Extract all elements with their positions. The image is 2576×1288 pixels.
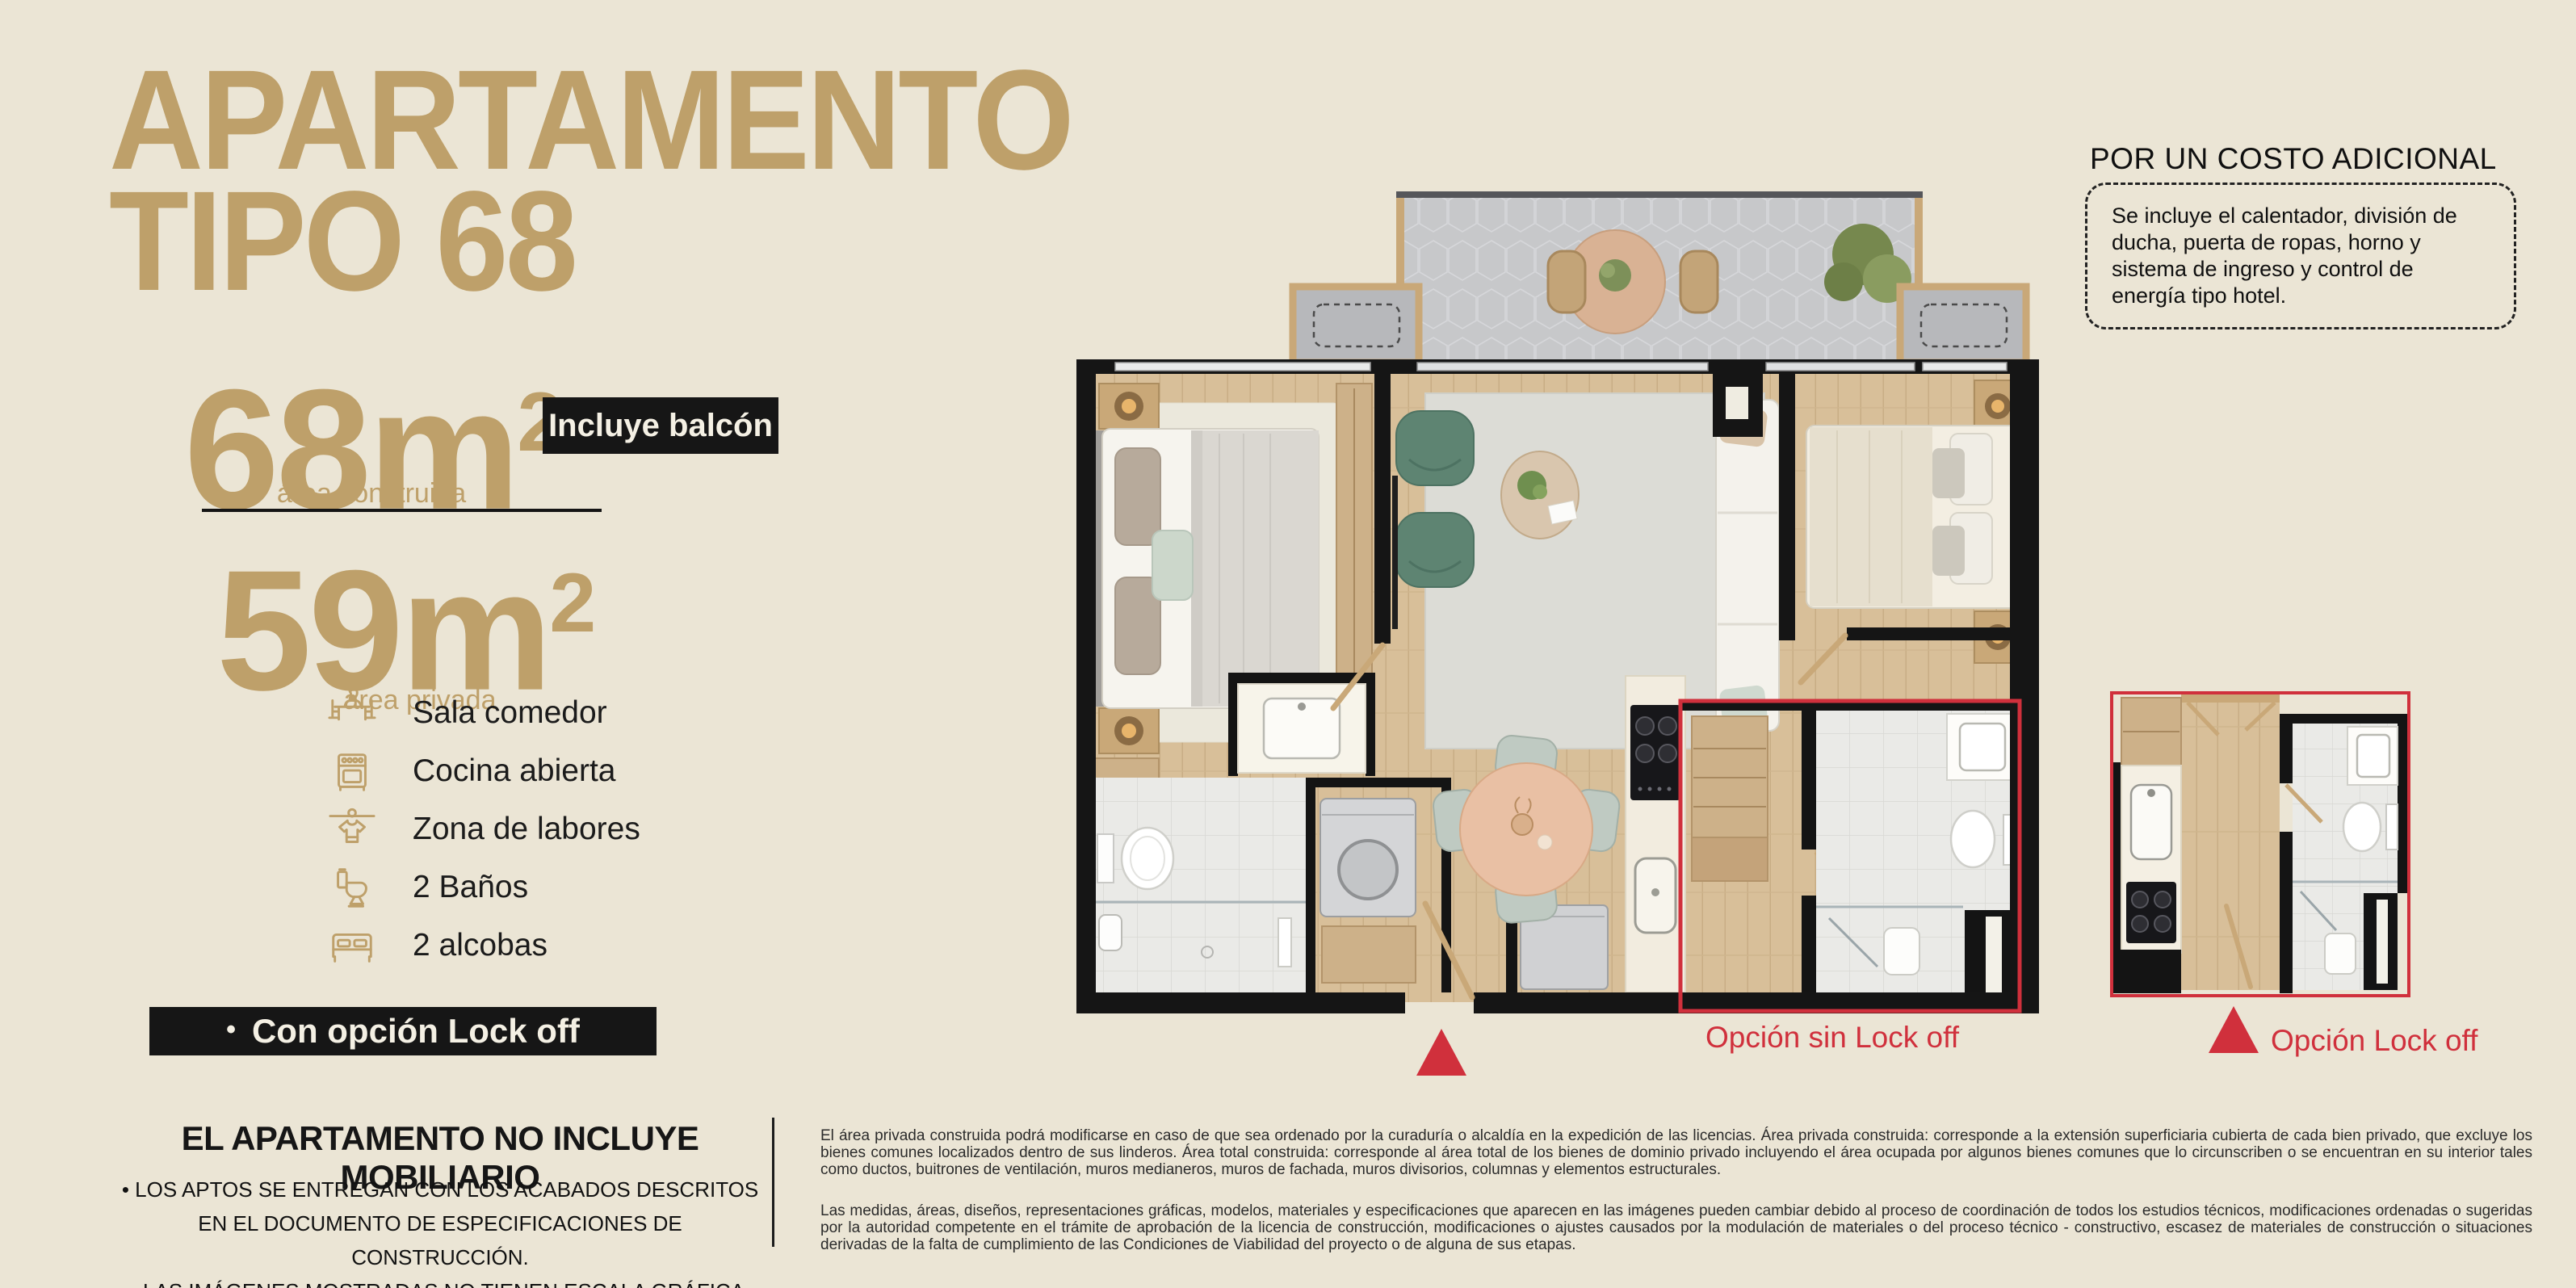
stove-icon [327, 746, 377, 796]
amenity-label: Sala comedor [413, 695, 607, 731]
legal-divider [772, 1118, 774, 1247]
amenity-sala-comedor: Sala comedor [327, 688, 640, 737]
lockoff-floorplan-frame [2110, 691, 2410, 997]
amenity-zona-labores: Zona de labores [327, 804, 640, 854]
disclaimer-bullets: • LOS APTOS SE ENTREGAN CON LOS ACABADOS… [113, 1173, 767, 1288]
living-room [1392, 393, 1779, 749]
toilet-icon [327, 862, 377, 913]
balcony-badge: Incluye balcón [543, 397, 778, 454]
private-area-value: 59m2 [216, 527, 596, 707]
lockoff-option-badge: • Con opción Lock off [149, 1007, 657, 1055]
lockoff-label: Opción Lock off [2271, 1024, 2477, 1058]
additional-cost-box: Se incluye el calentador, división de du… [2085, 183, 2516, 329]
windows [1115, 363, 2007, 371]
amenity-label: 2 alcobas [413, 928, 548, 963]
amenity-label: Cocina abierta [413, 753, 615, 789]
amenity-cocina-abierta: Cocina abierta [327, 746, 640, 795]
amenity-label: Zona de labores [413, 812, 640, 847]
legal-paragraph-2: Las medidas, áreas, diseños, representac… [820, 1202, 2532, 1253]
main-floorplan [1070, 191, 2071, 1023]
utility-closet-left [1293, 287, 1419, 363]
balcony [1396, 191, 1923, 363]
amenity-label: 2 Baños [413, 870, 528, 905]
lockoff-hall-floor [2181, 694, 2280, 990]
additional-cost-title: POR UN COSTO ADICIONAL [2090, 142, 2497, 176]
bullet-icon: • [226, 1014, 236, 1046]
amenity-list: Sala comedor Cocina abierta Zona de labo… [327, 688, 640, 970]
laundry-icon [327, 804, 377, 854]
vanity [1228, 673, 1375, 776]
amenity-banos: 2 Baños [327, 862, 640, 912]
disclaimer-bullet-1: • LOS APTOS SE ENTREGAN CON LOS ACABADOS… [113, 1173, 767, 1274]
brochure-page: APARTAMENTO TIPO 68 68m2 área construida… [0, 0, 2576, 1288]
page-title: APARTAMENTO TIPO 68 [109, 60, 1072, 302]
bed-icon [327, 921, 377, 971]
dining-icon [327, 688, 377, 738]
lockoff-badge-label: Con opción Lock off [252, 1012, 580, 1051]
legal-paragraph-1: El área privada construida podrá modific… [820, 1127, 2532, 1178]
north-arrow-main [1416, 1029, 1466, 1076]
amenity-alcobas: 2 alcobas [327, 921, 640, 970]
duct-core [1726, 387, 1748, 419]
built-area-label: área construida [198, 478, 545, 510]
lockoff-kitchenette [2113, 698, 2181, 993]
utility-closet-right [1900, 287, 2026, 363]
disclaimer-bullet-2: • LAS IMÁGENES MOSTRADAS NO TIENEN ESCAL… [113, 1274, 767, 1288]
north-arrow-lockoff [2209, 1006, 2259, 1053]
lockoff-floorplan [2113, 694, 2407, 994]
private-area-sup: 2 [549, 556, 596, 650]
sin-lockoff-label: Opción sin Lock off [1705, 1021, 1959, 1055]
lockoff-bathroom [2280, 714, 2407, 993]
area-divider [202, 509, 602, 512]
bathroom-1 [1094, 778, 1306, 992]
